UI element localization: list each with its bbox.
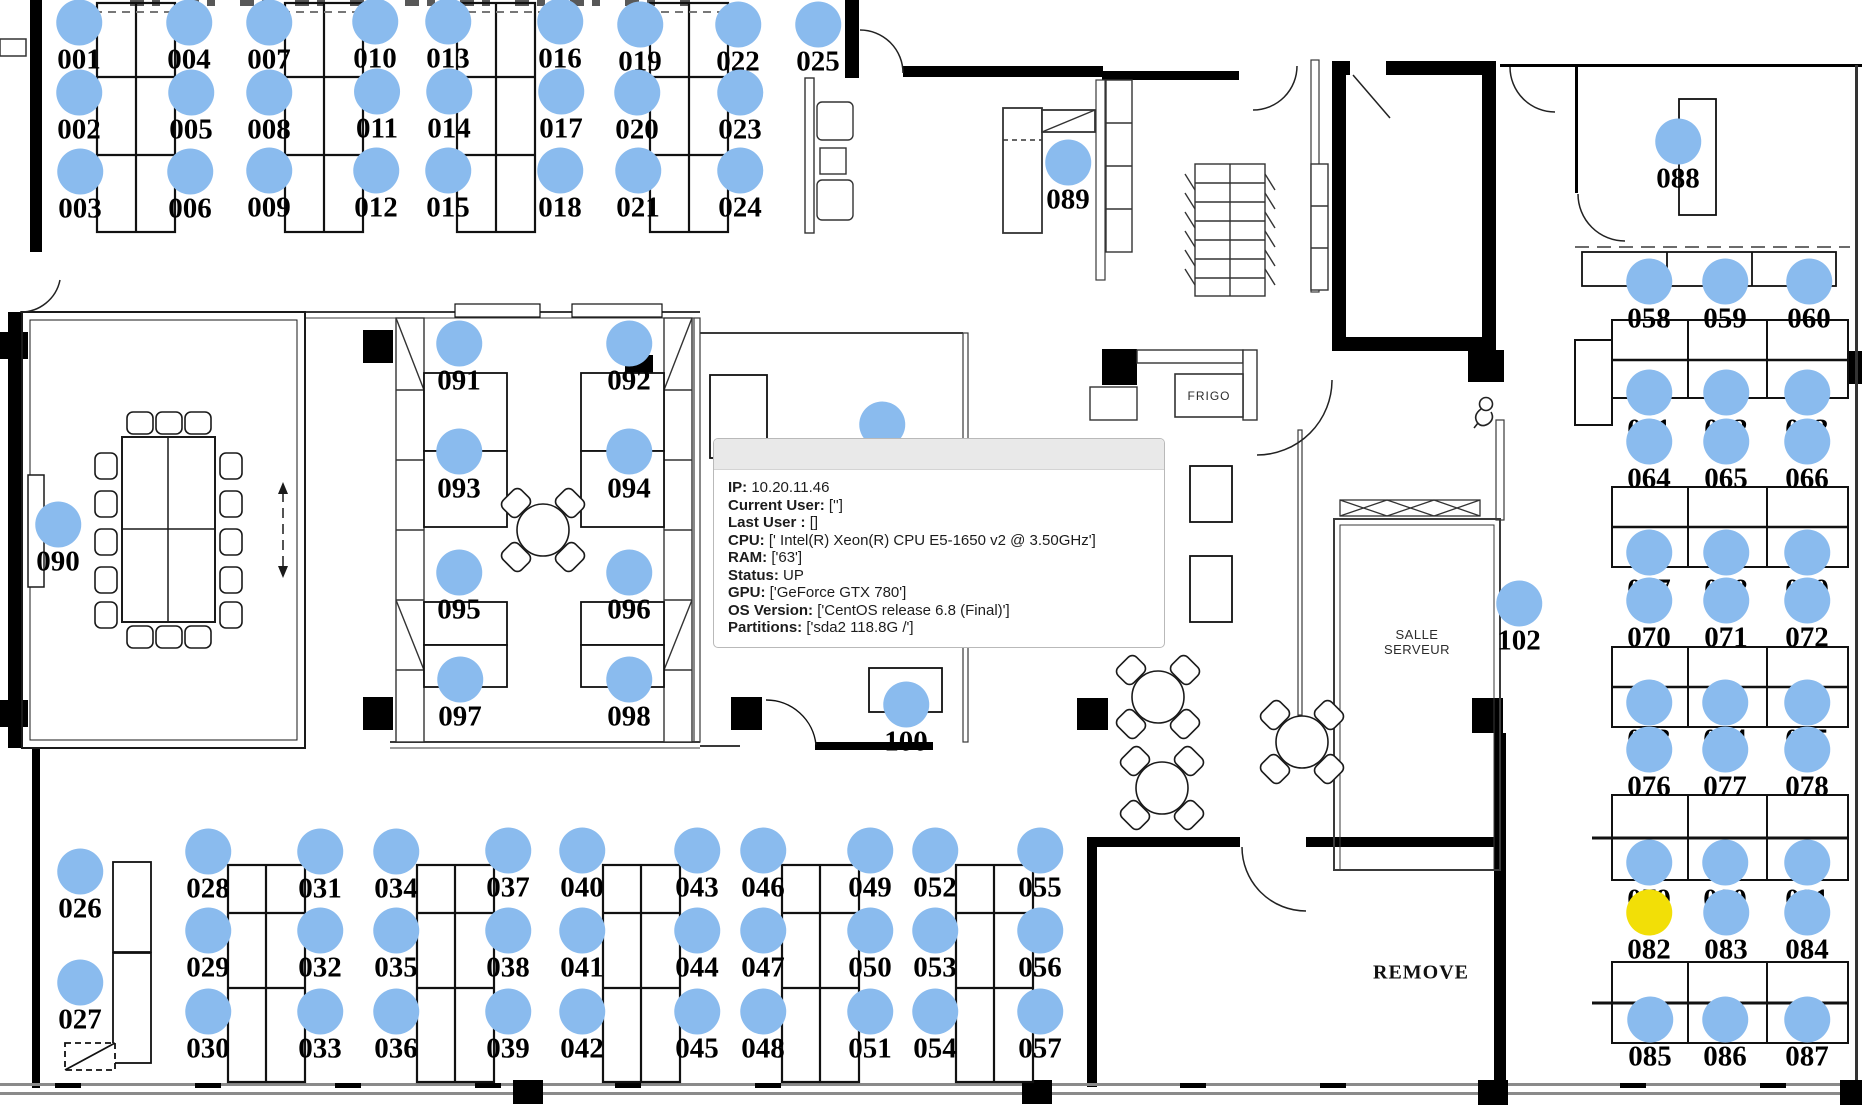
- tooltip-row-label: CPU:: [728, 532, 765, 549]
- seat-dot[interactable]: [297, 829, 343, 875]
- seat-dot[interactable]: [373, 989, 419, 1035]
- seat-dot[interactable]: [57, 960, 103, 1006]
- seat-dot[interactable]: [795, 2, 841, 48]
- seat-dot[interactable]: [559, 828, 605, 874]
- seat-number: 048: [741, 1033, 785, 1065]
- salle-serveur-label: SALLE SERVEUR: [1384, 627, 1450, 657]
- seat-028[interactable]: 028: [186, 873, 230, 906]
- seat-number: 096: [607, 594, 651, 626]
- seat-029[interactable]: 029: [186, 952, 230, 985]
- seat-number: 008: [247, 114, 291, 146]
- seat-dot[interactable]: [373, 829, 419, 875]
- seat-dot[interactable]: [185, 829, 231, 875]
- seat-dot[interactable]: [1703, 530, 1749, 576]
- tooltip-row-label: GPU:: [728, 584, 766, 601]
- seat-number: 028: [186, 873, 230, 905]
- seat-dot[interactable]: [436, 429, 482, 475]
- seat-037[interactable]: 037: [486, 872, 530, 905]
- seat-094[interactable]: 094: [607, 473, 651, 506]
- tooltip-row-value: ['']: [825, 497, 843, 514]
- seat-082[interactable]: 082: [1627, 934, 1671, 967]
- seat-086[interactable]: 086: [1703, 1041, 1747, 1074]
- seat-097[interactable]: 097: [438, 701, 482, 734]
- hatched-beam: [1340, 500, 1480, 516]
- seat-dot[interactable]: [485, 989, 531, 1035]
- seat-dot[interactable]: [717, 148, 763, 194]
- seat-038[interactable]: 038: [486, 952, 530, 985]
- seat-number: 056: [1018, 952, 1062, 984]
- tooltip-row: Status: UP: [728, 567, 1150, 585]
- seat-047[interactable]: 047: [741, 952, 785, 985]
- seat-number: 071: [1704, 622, 1748, 654]
- seat-dot[interactable]: [185, 989, 231, 1035]
- seat-dot[interactable]: [912, 908, 958, 954]
- seat-number: 082: [1627, 934, 1671, 966]
- seat-dot[interactable]: [1626, 419, 1672, 465]
- seat-dot[interactable]: [1703, 578, 1749, 624]
- seat-dot[interactable]: [185, 908, 231, 954]
- seat-number: 032: [298, 952, 342, 984]
- seat-012[interactable]: 012: [354, 192, 398, 225]
- seat-071[interactable]: 071: [1704, 622, 1748, 655]
- seat-040[interactable]: 040: [560, 872, 604, 905]
- seat-number: 003: [58, 193, 102, 225]
- seat-dot[interactable]: [1702, 997, 1748, 1043]
- seat-number: 098: [607, 701, 651, 733]
- seat-dot[interactable]: [674, 828, 720, 874]
- seat-number: 009: [247, 192, 291, 224]
- seat-021[interactable]: 021: [616, 192, 660, 225]
- seat-006[interactable]: 006: [168, 193, 212, 226]
- seat-077[interactable]: 077: [1703, 771, 1747, 804]
- seat-dot[interactable]: [617, 2, 663, 48]
- seat-dot[interactable]: [1626, 680, 1672, 726]
- seat-dot[interactable]: [847, 828, 893, 874]
- seat-dot[interactable]: [1784, 890, 1830, 936]
- seat-066[interactable]: 066: [1785, 463, 1829, 496]
- seat-number: 015: [426, 192, 470, 224]
- seat-076[interactable]: 076: [1627, 771, 1671, 804]
- seat-052[interactable]: 052: [913, 872, 957, 905]
- seat-dot[interactable]: [436, 321, 482, 367]
- seat-dot[interactable]: [606, 550, 652, 596]
- seat-005[interactable]: 005: [169, 114, 213, 147]
- seat-dot[interactable]: [1702, 727, 1748, 773]
- seat-054[interactable]: 054: [913, 1033, 957, 1066]
- seat-number: 097: [438, 701, 482, 733]
- seat-dot[interactable]: [1702, 840, 1748, 886]
- tooltip-row-label: Status:: [728, 567, 779, 584]
- seat-dot[interactable]: [425, 148, 471, 194]
- seat-dot[interactable]: [1786, 259, 1832, 305]
- seat-dot[interactable]: [1784, 530, 1830, 576]
- seat-number: 084: [1785, 934, 1829, 966]
- seat-dot[interactable]: [426, 69, 472, 115]
- seat-number: 002: [57, 114, 101, 146]
- seat-dot[interactable]: [606, 429, 652, 475]
- seat-031[interactable]: 031: [298, 873, 342, 906]
- mid-round-table: [499, 486, 587, 574]
- seat-098[interactable]: 098: [607, 701, 651, 734]
- seat-dot[interactable]: [485, 828, 531, 874]
- tooltip-row: RAM: ['63']: [728, 549, 1150, 567]
- seat-number: 047: [741, 952, 785, 984]
- tooltip-row-label: OS Version:: [728, 602, 813, 619]
- seat-100[interactable]: 100: [884, 726, 928, 759]
- seat-dot[interactable]: [614, 70, 660, 116]
- seat-number: 012: [354, 192, 398, 224]
- seat-number: 018: [538, 192, 582, 224]
- seat-088[interactable]: 088: [1656, 163, 1700, 196]
- seat-dot[interactable]: [538, 69, 584, 115]
- seat-dot[interactable]: [168, 70, 214, 116]
- seat-dot[interactable]: [1626, 530, 1672, 576]
- seat-number: 065: [1704, 463, 1748, 495]
- tooltip-header: [714, 439, 1164, 470]
- seat-number: 083: [1704, 934, 1748, 966]
- seat-dot[interactable]: [373, 908, 419, 954]
- seat-059[interactable]: 059: [1703, 303, 1747, 336]
- seat-number: 092: [607, 365, 651, 397]
- seat-number: 078: [1785, 771, 1829, 803]
- seat-dot[interactable]: [912, 828, 958, 874]
- seat-030[interactable]: 030: [186, 1033, 230, 1066]
- seat-036[interactable]: 036: [374, 1033, 418, 1066]
- seat-070[interactable]: 070: [1627, 622, 1671, 655]
- seat-058[interactable]: 058: [1627, 303, 1671, 336]
- seat-number: 070: [1627, 622, 1671, 654]
- seat-number: 094: [607, 473, 651, 505]
- seat-dot[interactable]: [1703, 890, 1749, 936]
- seat-017[interactable]: 017: [539, 113, 583, 146]
- tooltip-row-value: 10.20.11.46: [747, 479, 829, 496]
- seat-dot[interactable]: [847, 989, 893, 1035]
- seat-dot[interactable]: [57, 849, 103, 895]
- seat-number: 044: [675, 952, 719, 984]
- seat-dot[interactable]: [615, 148, 661, 194]
- seat-number: 041: [560, 952, 604, 984]
- remove-label: REMOVE: [1373, 962, 1469, 985]
- seat-number: 086: [1703, 1041, 1747, 1073]
- seat-number: 064: [1627, 463, 1671, 495]
- seat-dot[interactable]: [1703, 419, 1749, 465]
- seat-dot[interactable]: [674, 989, 720, 1035]
- seat-number: 040: [560, 872, 604, 904]
- tooltip-row: Partitions: ['sda2 118.8G /']: [728, 619, 1150, 637]
- seat-dot[interactable]: [1626, 370, 1672, 416]
- seat-042[interactable]: 042: [560, 1033, 604, 1066]
- tooltip-row-label: Current User:: [728, 497, 825, 514]
- seat-083[interactable]: 083: [1704, 934, 1748, 967]
- break-table: [1118, 744, 1206, 832]
- seat-dot[interactable]: [246, 0, 292, 46]
- seat-dot[interactable]: [56, 70, 102, 116]
- seat-041[interactable]: 041: [560, 952, 604, 985]
- seat-number: 042: [560, 1033, 604, 1065]
- seat-number: 043: [675, 872, 719, 904]
- seat-number: 014: [427, 113, 471, 145]
- seat-number: 055: [1018, 872, 1062, 904]
- seat-087[interactable]: 087: [1785, 1041, 1829, 1074]
- seat-number: 090: [36, 546, 80, 578]
- seat-096[interactable]: 096: [607, 594, 651, 627]
- seat-dot[interactable]: [717, 70, 763, 116]
- seat-dot[interactable]: [1626, 578, 1672, 624]
- tooltip-row: GPU: ['GeForce GTX 780']: [728, 584, 1150, 602]
- seat-053[interactable]: 053: [913, 952, 957, 985]
- seat-089[interactable]: 089: [1046, 184, 1090, 217]
- seat-number: 021: [616, 192, 660, 224]
- tooltip-row: Last User : []: [728, 514, 1150, 532]
- seat-dot[interactable]: [166, 0, 212, 46]
- seat-034[interactable]: 034: [374, 873, 418, 906]
- seat-dot[interactable]: [559, 989, 605, 1035]
- tooltip-row-label: Partitions:: [728, 619, 802, 636]
- seat-dot[interactable]: [1627, 997, 1673, 1043]
- seat-number: 029: [186, 952, 230, 984]
- seat-dot[interactable]: [354, 69, 400, 115]
- seat-number: 057: [1018, 1033, 1062, 1065]
- seat-065[interactable]: 065: [1704, 463, 1748, 496]
- seat-number: 025: [796, 46, 840, 78]
- seat-dot[interactable]: [1702, 259, 1748, 305]
- seat-dot[interactable]: [436, 550, 482, 596]
- seat-dot[interactable]: [1703, 370, 1749, 416]
- seat-085[interactable]: 085: [1628, 1041, 1672, 1074]
- seat-number: 051: [848, 1033, 892, 1065]
- seat-number: 046: [741, 872, 785, 904]
- seat-number: 034: [374, 873, 418, 905]
- seat-dot[interactable]: [740, 828, 786, 874]
- seat-number: 031: [298, 873, 342, 905]
- seat-number: 076: [1627, 771, 1671, 803]
- tooltip-row-value: []: [806, 514, 819, 531]
- seat-number: 102: [1497, 625, 1541, 657]
- seat-number: 020: [615, 114, 659, 146]
- seat-dot[interactable]: [1496, 581, 1542, 627]
- tooltip-row: OS Version: ['CentOS release 6.8 (Final)…: [728, 602, 1150, 620]
- seat-102[interactable]: 102: [1497, 625, 1541, 658]
- seat-033[interactable]: 033: [298, 1033, 342, 1066]
- seat-dot[interactable]: [912, 989, 958, 1035]
- break-table: [1114, 653, 1202, 741]
- tooltip-row-value: ['CentOS release 6.8 (Final)']: [813, 602, 1010, 619]
- seat-dot[interactable]: [297, 908, 343, 954]
- seat-011[interactable]: 011: [356, 113, 398, 146]
- seat-056[interactable]: 056: [1018, 952, 1062, 985]
- seat-dot[interactable]: [847, 908, 893, 954]
- seat-dot[interactable]: [559, 908, 605, 954]
- seat-number: 006: [168, 193, 212, 225]
- tooltip-row-label: RAM:: [728, 549, 767, 566]
- seat-dot[interactable]: [606, 657, 652, 703]
- tooltip-row: Current User: ['']: [728, 497, 1150, 515]
- seat-number: 095: [437, 594, 481, 626]
- seat-dot[interactable]: [1784, 419, 1830, 465]
- seat-dot[interactable]: [167, 149, 213, 195]
- tooltip-row-value: ['GeForce GTX 780']: [766, 584, 907, 601]
- seat-number: 088: [1656, 163, 1700, 195]
- tooltip-row-value: [' Intel(R) Xeon(R) CPU E5-1650 v2 @ 3.5…: [765, 532, 1096, 549]
- seat-dot[interactable]: [1784, 727, 1830, 773]
- seat-057[interactable]: 057: [1018, 1033, 1062, 1066]
- seat-055[interactable]: 055: [1018, 872, 1062, 905]
- seat-number: 035: [374, 952, 418, 984]
- seat-dot[interactable]: [353, 148, 399, 194]
- seat-dot[interactable]: [537, 0, 583, 45]
- seat-number: 091: [437, 365, 481, 397]
- seat-039[interactable]: 039: [486, 1033, 530, 1066]
- seat-number: 011: [356, 113, 398, 145]
- seat-dot[interactable]: [297, 989, 343, 1035]
- seat-dot[interactable]: [56, 0, 102, 46]
- seat-number: 038: [486, 952, 530, 984]
- seat-number: 059: [1703, 303, 1747, 335]
- seat-dot[interactable]: [1017, 828, 1063, 874]
- cutoff-text-fragment: [130, 0, 690, 6]
- seat-number: 023: [718, 114, 762, 146]
- seat-014[interactable]: 014: [427, 113, 471, 146]
- frigo-label: FRIGO: [1188, 389, 1231, 403]
- tooltip-row-value: ['63']: [767, 549, 802, 566]
- seat-025[interactable]: 025: [796, 46, 840, 79]
- seat-dot[interactable]: [1017, 989, 1063, 1035]
- seat-dot[interactable]: [1626, 259, 1672, 305]
- seat-number: 058: [1627, 303, 1671, 335]
- seat-dot[interactable]: [35, 502, 81, 548]
- seat-dot[interactable]: [246, 70, 292, 116]
- seat-dot[interactable]: [1017, 908, 1063, 954]
- seat-dot[interactable]: [437, 657, 483, 703]
- seat-dot[interactable]: [1784, 680, 1830, 726]
- seat-dot[interactable]: [606, 321, 652, 367]
- seat-number: 093: [437, 473, 481, 505]
- seat-095[interactable]: 095: [437, 594, 481, 627]
- seat-number: 053: [913, 952, 957, 984]
- seat-dot[interactable]: [1626, 727, 1672, 773]
- tooltip-row: IP: 10.20.11.46: [728, 479, 1150, 497]
- seat-002[interactable]: 002: [57, 114, 101, 147]
- office-088: [1582, 99, 1836, 286]
- seat-dot[interactable]: [715, 2, 761, 48]
- seat-045[interactable]: 045: [675, 1033, 719, 1066]
- seat-051[interactable]: 051: [848, 1033, 892, 1066]
- seat-049[interactable]: 049: [848, 872, 892, 905]
- seat-072[interactable]: 072: [1785, 622, 1829, 655]
- seat-046[interactable]: 046: [741, 872, 785, 905]
- seat-number: 033: [298, 1033, 342, 1065]
- seat-093[interactable]: 093: [437, 473, 481, 506]
- seat-090[interactable]: 090: [36, 546, 80, 579]
- seat-number: 026: [58, 893, 102, 925]
- seat-number: 077: [1703, 771, 1747, 803]
- seat-020[interactable]: 020: [615, 114, 659, 147]
- seat-number: 005: [169, 114, 213, 146]
- seat-044[interactable]: 044: [675, 952, 719, 985]
- seat-dot[interactable]: [1626, 840, 1672, 886]
- seat-024[interactable]: 024: [718, 192, 762, 225]
- machine-info-tooltip: IP: 10.20.11.46Current User: ['']Last Us…: [713, 438, 1165, 648]
- seat-dot[interactable]: [1702, 680, 1748, 726]
- seat-dot[interactable]: [1784, 578, 1830, 624]
- seat-008[interactable]: 008: [247, 114, 291, 147]
- seat-084[interactable]: 084: [1785, 934, 1829, 967]
- seat-009[interactable]: 009: [247, 192, 291, 225]
- person-icon: [1474, 398, 1493, 429]
- seat-number: 037: [486, 872, 530, 904]
- seat-048[interactable]: 048: [741, 1033, 785, 1066]
- seat-number: 049: [848, 872, 892, 904]
- seat-dot[interactable]: [485, 908, 531, 954]
- desk-blocks-bottom: [228, 865, 1033, 1082]
- seat-027[interactable]: 027: [58, 1004, 102, 1037]
- seat-dot[interactable]: [740, 908, 786, 954]
- seat-dot[interactable]: [57, 149, 103, 195]
- seat-092[interactable]: 092: [607, 365, 651, 398]
- seat-dot[interactable]: [1045, 140, 1091, 186]
- seat-003[interactable]: 003: [58, 193, 102, 226]
- seat-number: 066: [1785, 463, 1829, 495]
- seat-dot[interactable]: [1784, 997, 1830, 1043]
- seat-023[interactable]: 023: [718, 114, 762, 147]
- tooltip-row-label: IP:: [728, 479, 747, 496]
- seat-number: 054: [913, 1033, 957, 1065]
- seat-026[interactable]: 026: [58, 893, 102, 926]
- seat-032[interactable]: 032: [298, 952, 342, 985]
- seat-015[interactable]: 015: [426, 192, 470, 225]
- seat-043[interactable]: 043: [675, 872, 719, 905]
- seat-number: 050: [848, 952, 892, 984]
- seat-number: 039: [486, 1033, 530, 1065]
- seat-number: 072: [1785, 622, 1829, 654]
- seat-number: 100: [884, 726, 928, 758]
- tooltip-row-value: UP: [779, 567, 804, 584]
- tooltip-row-value: ['sda2 118.8G /']: [802, 619, 913, 636]
- seat-dot[interactable]: [1784, 370, 1830, 416]
- seat-number: 024: [718, 192, 762, 224]
- seat-091[interactable]: 091: [437, 365, 481, 398]
- seat-064[interactable]: 064: [1627, 463, 1671, 496]
- seat-078[interactable]: 078: [1785, 771, 1829, 804]
- seat-number: 052: [913, 872, 957, 904]
- seat-number: 030: [186, 1033, 230, 1065]
- seat-number: 036: [374, 1033, 418, 1065]
- seat-number: 085: [1628, 1041, 1672, 1073]
- seat-number: 045: [675, 1033, 719, 1065]
- seat-018[interactable]: 018: [538, 192, 582, 225]
- seat-dot[interactable]: [740, 989, 786, 1035]
- seat-dot[interactable]: [537, 148, 583, 194]
- seat-dot[interactable]: [674, 908, 720, 954]
- tooltip-rows: IP: 10.20.11.46Current User: ['']Last Us…: [714, 470, 1164, 637]
- seat-number: 027: [58, 1004, 102, 1036]
- seat-dot[interactable]: [425, 0, 471, 45]
- seat-dot-highlighted[interactable]: [1626, 890, 1672, 936]
- seat-050[interactable]: 050: [848, 952, 892, 985]
- seat-dot[interactable]: [352, 0, 398, 45]
- seat-number: 087: [1785, 1041, 1829, 1073]
- seat-dot[interactable]: [1655, 119, 1701, 165]
- seat-060[interactable]: 060: [1787, 303, 1831, 336]
- seat-035[interactable]: 035: [374, 952, 418, 985]
- seat-number: 017: [539, 113, 583, 145]
- seat-dot[interactable]: [883, 682, 929, 728]
- seat-dot[interactable]: [246, 148, 292, 194]
- kitchen: [805, 78, 1328, 420]
- seat-number: 089: [1046, 184, 1090, 216]
- bottom-wall: [0, 1080, 1862, 1105]
- seat-dot[interactable]: [1784, 840, 1830, 886]
